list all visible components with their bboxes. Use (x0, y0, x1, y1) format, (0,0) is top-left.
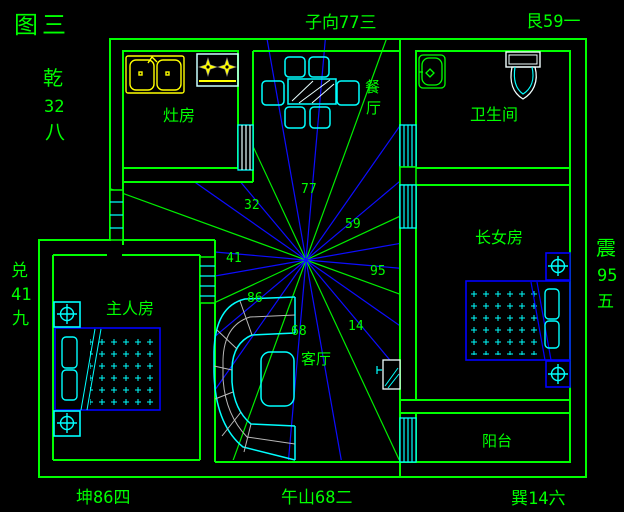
ray-number-41: 41 (226, 251, 242, 266)
label-top-center: 子向77三 (305, 13, 376, 33)
nightstand-daughter-bottom (546, 361, 570, 387)
pillow (62, 337, 77, 368)
chair (262, 81, 284, 105)
floor-plan-svg: 77 32 59 41 95 86 68 14 灶房 餐 厅 卫生间 长女房 主… (0, 0, 624, 512)
pillow (62, 370, 77, 400)
ray-number-14: 14 (348, 319, 364, 334)
compass-ray (306, 260, 445, 512)
ray-number-59: 59 (345, 217, 361, 232)
label-right-2: 95 (597, 266, 617, 286)
ray-number-32: 32 (244, 198, 260, 213)
label-left-lower-1: 兑 (11, 261, 28, 281)
window-bathroom-left (400, 125, 416, 167)
kitchen-sink-icon (126, 56, 184, 93)
compass-ray (306, 260, 624, 289)
room-labels: 灶房 餐 厅 卫生间 长女房 主人房 客厅 阳台 (106, 78, 523, 450)
chair (309, 57, 329, 77)
chair (337, 81, 359, 105)
pillow (545, 289, 559, 319)
window-daughter-left (400, 185, 416, 228)
chair (285, 107, 305, 128)
room-label-kitchen: 灶房 (163, 106, 195, 125)
window-hall-left (110, 190, 123, 240)
tv-icon (377, 360, 400, 389)
label-top-right: 艮59一 (526, 12, 580, 32)
label-left-upper-2: 32 (44, 97, 64, 117)
bed-master (55, 328, 160, 410)
perimeter-labels: 图三 子向77三 艮59一 乾 32 八 兑 41 九 震 95 五 坤86四 … (11, 11, 617, 509)
chair (310, 107, 330, 128)
label-left-lower-2: 41 (11, 285, 31, 305)
room-label-dining-1: 餐 (365, 78, 380, 96)
nightstand-master-bottom (54, 411, 80, 436)
window-balcony-left (400, 418, 416, 462)
ray-number-68: 68 (291, 324, 307, 339)
label-bottom-left: 坤86四 (76, 488, 130, 508)
room-label-bathroom: 卫生间 (470, 105, 518, 124)
coffee-table (261, 352, 294, 406)
compass-ray (0, 147, 306, 260)
room-label-daughter: 长女房 (475, 228, 523, 247)
chair (285, 57, 305, 77)
bathroom-sink-icon (419, 55, 445, 88)
bed-daughter (466, 281, 570, 360)
sofa (214, 297, 295, 460)
window-kitchen-right (238, 125, 253, 170)
compass-ray (36, 71, 306, 260)
label-left-upper-1: 乾 (43, 66, 63, 90)
pillow (545, 321, 559, 348)
label-left-upper-3: 八 (45, 120, 65, 144)
compass-ray (94, 7, 306, 260)
label-left-lower-3: 九 (12, 309, 29, 329)
wall-chunk (400, 167, 416, 185)
label-bottom-center: 午山68二 (281, 488, 352, 508)
compass-center-point (304, 258, 308, 262)
room-label-living: 客厅 (301, 350, 331, 368)
compass-ray (306, 260, 363, 512)
windows (110, 125, 416, 462)
compass-ray (306, 121, 605, 260)
stove-icon (197, 54, 238, 86)
toilet-icon (506, 52, 540, 99)
ray-number-95: 95 (370, 264, 386, 279)
ray-number-86: 86 (247, 291, 263, 306)
nightstand-daughter-top (546, 253, 570, 280)
label-right-1: 震 (596, 236, 616, 260)
room-label-balcony: 阳台 (482, 432, 512, 450)
window-master-right (200, 257, 215, 303)
figure-title: 图三 (14, 11, 70, 39)
cad-floor-plan-canvas: 77 32 59 41 95 86 68 14 灶房 餐 厅 卫生间 长女房 主… (0, 0, 624, 512)
label-bottom-right: 巽14六 (511, 489, 565, 509)
room-label-master: 主人房 (106, 299, 154, 318)
dining-table (288, 79, 336, 104)
nightstand-master-top (54, 302, 80, 327)
label-right-3: 五 (597, 292, 614, 312)
room-label-dining-2: 厅 (366, 99, 381, 117)
ray-number-77: 77 (301, 182, 317, 197)
